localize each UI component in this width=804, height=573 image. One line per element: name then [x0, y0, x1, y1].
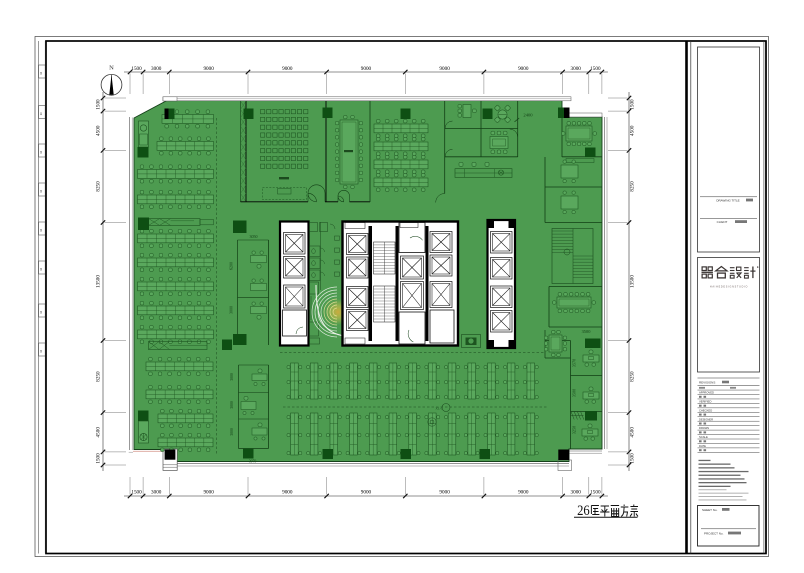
- svg-text:##: ##: [40, 189, 43, 192]
- svg-text:1500: 1500: [96, 99, 102, 110]
- svg-text:CHECKED: CHECKED: [699, 408, 712, 412]
- svg-text:3000: 3000: [230, 401, 234, 409]
- svg-text:9000: 9000: [203, 66, 214, 72]
- svg-text:CLIENT: CLIENT: [717, 220, 728, 224]
- svg-text:N: N: [109, 65, 114, 72]
- svg-text:APPROVED: APPROVED: [699, 391, 714, 395]
- svg-text:3500: 3500: [572, 389, 577, 397]
- svg-text:9000: 9000: [518, 489, 529, 495]
- svg-text:DRAWING TITLE: DRAWING TITLE: [716, 199, 739, 203]
- svg-text:XL-1: XL-1: [435, 407, 443, 411]
- svg-text:9000: 9000: [439, 66, 450, 72]
- svg-text:8250: 8250: [630, 181, 636, 192]
- svg-text:##: ##: [40, 71, 43, 74]
- svg-text:DRAWN: DRAWN: [699, 426, 709, 430]
- svg-text:4500: 4500: [630, 125, 636, 136]
- svg-text:3570: 3570: [572, 359, 577, 367]
- svg-text:4500: 4500: [630, 427, 636, 438]
- svg-text:1500: 1500: [590, 489, 601, 495]
- svg-text:##: ##: [40, 267, 43, 270]
- svg-text:13500: 13500: [630, 275, 636, 288]
- svg-text:SHEET No.: SHEET No.: [702, 508, 718, 512]
- svg-text:3500: 3500: [582, 329, 592, 334]
- svg-text:3070: 3070: [249, 460, 257, 464]
- svg-text:##: ##: [40, 349, 43, 352]
- svg-text:8250: 8250: [96, 371, 102, 382]
- svg-text:VERIFIED: VERIFIED: [699, 399, 711, 403]
- svg-text:9000: 9000: [439, 489, 450, 495]
- svg-text:9000: 9000: [361, 489, 372, 495]
- svg-text:26: 26: [577, 502, 590, 518]
- svg-text:1500: 1500: [131, 489, 142, 495]
- svg-text:9000: 9000: [282, 489, 293, 495]
- svg-text:3050: 3050: [250, 234, 258, 239]
- svg-text:3000: 3000: [571, 66, 582, 72]
- svg-text:13500: 13500: [96, 275, 102, 288]
- svg-text:8250: 8250: [630, 371, 636, 382]
- svg-text:1500: 1500: [630, 453, 636, 464]
- svg-text:8250: 8250: [96, 181, 102, 192]
- svg-text:##: ##: [40, 150, 43, 153]
- svg-text:1500: 1500: [96, 453, 102, 464]
- svg-text:PROJECT No.: PROJECT No.: [704, 532, 724, 536]
- svg-text:3000: 3000: [229, 306, 234, 314]
- svg-text:9000: 9000: [518, 66, 529, 72]
- svg-text:3000: 3000: [230, 373, 234, 381]
- svg-text:3250: 3250: [572, 426, 577, 434]
- svg-text:DATE: DATE: [699, 444, 706, 448]
- svg-text:1500: 1500: [630, 99, 636, 110]
- svg-text:##: ##: [40, 310, 43, 313]
- svg-text:##: ##: [40, 228, 43, 231]
- svg-text:3000: 3000: [571, 489, 582, 495]
- svg-text:3000: 3000: [151, 489, 162, 495]
- svg-text:HAIHEDESIGNSTUDIO: HAIHEDESIGNSTUDIO: [710, 286, 748, 289]
- svg-text:4500: 4500: [96, 427, 102, 438]
- svg-text:6200: 6200: [229, 262, 234, 270]
- svg-text:3000: 3000: [230, 428, 234, 436]
- svg-text:SCALE: SCALE: [699, 435, 708, 439]
- svg-text:9000: 9000: [203, 489, 214, 495]
- svg-text:9000: 9000: [282, 66, 293, 72]
- svg-text:1500: 1500: [590, 66, 601, 72]
- svg-text:4500: 4500: [96, 125, 102, 136]
- svg-text:##: ##: [40, 112, 43, 115]
- svg-text:DESIGNER: DESIGNER: [699, 417, 713, 421]
- svg-text:2400: 2400: [523, 113, 533, 118]
- svg-text:REVISIONS: REVISIONS: [699, 381, 715, 385]
- svg-text:3000: 3000: [151, 66, 162, 72]
- svg-text:9000: 9000: [361, 66, 372, 72]
- svg-text:1500: 1500: [131, 66, 142, 72]
